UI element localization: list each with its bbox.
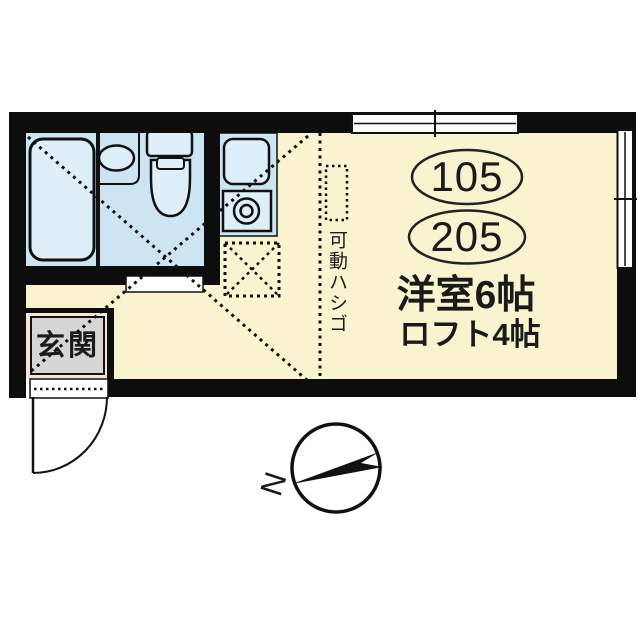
- compass: [292, 424, 383, 512]
- wall-kitchen-divider: [204, 131, 220, 285]
- toilet-tank-icon: [147, 131, 192, 156]
- wall-entrance-top: [26, 308, 111, 313]
- bathroom-door-opening: [126, 276, 203, 292]
- wall-left: [9, 112, 26, 398]
- unit-number-105: 105: [407, 152, 527, 202]
- toilet-seat-icon: [157, 158, 184, 169]
- washbasin-icon: [99, 146, 134, 171]
- bathtub-icon: [30, 139, 94, 260]
- entrance-door: [30, 379, 108, 473]
- door-swing-arc: [33, 397, 107, 473]
- wall-bottom: [108, 379, 636, 397]
- room-size-label: 洋室6帖: [361, 274, 571, 318]
- stove-icon: [223, 191, 271, 231]
- window-top: [352, 110, 518, 137]
- movable-ladder-label: 可動ハシゴ: [324, 222, 348, 342]
- kitchen-counter: [218, 133, 277, 236]
- wall-top: [9, 112, 636, 133]
- kitchen-sink-icon: [224, 139, 269, 184]
- floorplan-image: 105 205 洋室6帖 ロフト4帖 玄関 可動ハシゴ N: [0, 0, 640, 640]
- wall-entrance-right: [107, 308, 114, 379]
- entrance-label: 玄関: [31, 326, 105, 366]
- loft-size-label: ロフト4帖: [365, 317, 575, 353]
- window-right: [614, 130, 637, 268]
- unit-number-205: 205: [407, 212, 527, 262]
